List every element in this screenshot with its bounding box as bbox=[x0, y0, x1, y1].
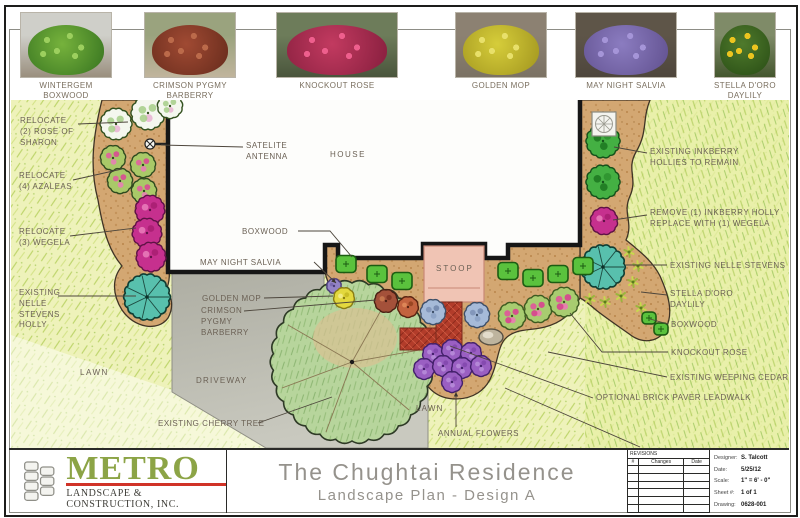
company-name: METRO bbox=[66, 453, 226, 485]
info-row: Sheet #: 1 of 1 bbox=[714, 490, 785, 496]
info-value: 1 of 1 bbox=[741, 490, 757, 496]
legend-item: WINTERGEM BOXWOOD bbox=[20, 12, 112, 100]
info-row: Date: 5/25/12 bbox=[714, 467, 785, 473]
plant-photo-bush bbox=[28, 25, 104, 75]
plant-symbol-boxwood bbox=[367, 266, 387, 283]
plant-symbol-barberry bbox=[374, 290, 397, 313]
callout-annual-flowers: ANNUAL FLOWERS bbox=[438, 429, 519, 440]
legend-item: MAY NIGHT SALVIA bbox=[575, 12, 677, 91]
legend-item: KNOCKOUT ROSE bbox=[276, 12, 398, 91]
revision-row bbox=[628, 482, 709, 490]
plant-symbol-azalea bbox=[107, 169, 132, 194]
plant-photo bbox=[575, 12, 677, 78]
plant-symbol-weigela bbox=[590, 207, 617, 234]
plant-photo-legend: WINTERGEM BOXWOOD CRIMSON PYGMY BARBERRY… bbox=[0, 12, 800, 100]
plant-symbol-annual bbox=[414, 359, 435, 380]
plant-symbol-annual bbox=[442, 372, 463, 393]
company-tagline: LANDSCAPE & CONSTRUCTION, INC. bbox=[66, 488, 226, 510]
callout-relocate-rose-of-sharon: RELOCATE (2) ROSE OF SHARON bbox=[20, 116, 74, 148]
house-footprint bbox=[168, 100, 580, 272]
plant-symbol-knockout_rose bbox=[524, 295, 551, 322]
plant-photo-bush bbox=[720, 25, 770, 75]
revision-row bbox=[628, 474, 709, 482]
plant-symbol-knockout_rose bbox=[498, 302, 525, 329]
plant-photo bbox=[20, 12, 112, 78]
plant-photo-bush bbox=[463, 25, 539, 75]
revisions-header: REVISIONS bbox=[628, 450, 709, 459]
plant-symbol-boxwood bbox=[336, 256, 356, 273]
callout-stella-doro-daylily: STELLA D'ORO DAYLILY bbox=[670, 289, 733, 311]
revisions-columns: #ChangesDate bbox=[628, 459, 709, 466]
info-value: 1" = 6' - 0" bbox=[741, 478, 770, 484]
callout-relocate-azaleas: RELOCATE (4) AZALEAS bbox=[19, 171, 72, 193]
plant-photo-bush bbox=[584, 25, 668, 75]
revision-row bbox=[628, 466, 709, 474]
legend-label: GOLDEN MOP bbox=[455, 81, 547, 91]
callout-crimson-pygmy-barberry: CRIMSON PYGMY BARBERRY bbox=[201, 306, 249, 338]
plant-symbol-boxwood bbox=[548, 266, 568, 283]
tree-trunk-center bbox=[350, 360, 354, 364]
callout-remove-inkberry: REMOVE (1) INKBERRY HOLLY REPLACE WITH (… bbox=[650, 208, 780, 230]
revision-row bbox=[628, 497, 709, 505]
plant-symbol-boxwood bbox=[498, 263, 518, 280]
plant-photo bbox=[276, 12, 398, 78]
callout-house: HOUSE bbox=[330, 150, 366, 161]
plant-photo bbox=[144, 12, 236, 78]
info-value: S. Talcott bbox=[741, 455, 768, 461]
revision-row bbox=[628, 505, 709, 513]
callout-existing-cherry-tree: EXISTING CHERRY TREE bbox=[158, 419, 264, 430]
plant-symbol-boxwood bbox=[642, 312, 656, 324]
callout-knockout-rose: KNOCKOUT ROSE bbox=[671, 348, 748, 359]
drawing-title-cell: The Chughtai Residence Landscape Plan - … bbox=[227, 450, 628, 513]
callout-optional-brick-paver-leadwalk: OPTIONAL BRICK PAVER LEADWALK bbox=[596, 393, 751, 404]
plant-symbol-barberry_orange bbox=[398, 297, 419, 318]
plant-symbol-boxwood bbox=[573, 258, 593, 275]
legend-label: WINTERGEM BOXWOOD bbox=[20, 81, 112, 100]
info-value: 5/25/12 bbox=[741, 467, 761, 473]
plant-symbol-inkberry_holly bbox=[586, 165, 620, 199]
info-row: Designer: S. Talcott bbox=[714, 455, 785, 461]
callout-relocate-wegela: RELOCATE (3) WEGELA bbox=[19, 227, 70, 249]
revision-row bbox=[628, 489, 709, 497]
callout-boxwood-left: BOXWOOD bbox=[242, 227, 288, 238]
callout-existing-nelle-stevens-holly: EXISTING NELLE STEVENS HOLLY bbox=[19, 288, 60, 331]
plant-symbol-salvia bbox=[420, 300, 445, 325]
plant-symbol-boxwood bbox=[523, 270, 543, 287]
ac-unit-icon bbox=[592, 112, 616, 136]
callout-stoop: STOOP bbox=[436, 264, 474, 275]
callout-lawn-left: LAWN bbox=[80, 368, 109, 379]
callout-existing-weeping-cedar: EXISTING WEEPING CEDAR bbox=[670, 373, 789, 384]
plant-symbol-weigela bbox=[136, 242, 166, 272]
plant-symbol-annual bbox=[471, 356, 492, 377]
info-row: Drawing: 0628-001 bbox=[714, 502, 785, 508]
drawing-info-table: Designer: S. Talcott Date: 5/25/12 Scale… bbox=[710, 450, 789, 513]
legend-label: KNOCKOUT ROSE bbox=[276, 81, 398, 91]
info-value: 0628-001 bbox=[741, 502, 766, 508]
legend-label: STELLA D'ORO DAYLILY bbox=[714, 81, 776, 100]
plant-symbol-azalea bbox=[100, 146, 125, 171]
info-row: Scale: 1" = 6' - 0" bbox=[714, 478, 785, 484]
legend-item: GOLDEN MOP bbox=[455, 12, 547, 91]
plant-symbol-golden_mop bbox=[334, 288, 355, 309]
drawing-subtitle: Landscape Plan - Design A bbox=[318, 487, 536, 504]
callout-existing-nelle-stevens-right: EXISTING NELLE STEVENS bbox=[670, 261, 785, 272]
plant-photo bbox=[455, 12, 547, 78]
legend-item: STELLA D'ORO DAYLILY bbox=[714, 12, 776, 100]
revisions-table: REVISIONS #ChangesDate bbox=[628, 450, 710, 513]
plant-symbol-boulder bbox=[479, 329, 503, 345]
callout-boxwood-right: BOXWOOD bbox=[671, 320, 717, 331]
callout-may-night-salvia: MAY NIGHT SALVIA bbox=[200, 258, 281, 269]
plant-symbol-boxwood bbox=[392, 273, 412, 290]
plant-symbol-azalea bbox=[130, 153, 155, 178]
info-label: Designer: bbox=[714, 455, 741, 461]
plant-symbol-rose_of_sharon bbox=[100, 108, 132, 140]
info-label: Drawing: bbox=[714, 502, 741, 508]
plant-symbol-salvia bbox=[464, 303, 489, 328]
callout-satelite-antenna: SATELITE ANTENNA bbox=[246, 141, 288, 163]
info-label: Date: bbox=[714, 467, 741, 473]
title-block: METRO LANDSCAPE & CONSTRUCTION, INC. The… bbox=[9, 448, 789, 513]
legend-label: MAY NIGHT SALVIA bbox=[575, 81, 677, 91]
company-logo-cell: METRO LANDSCAPE & CONSTRUCTION, INC. bbox=[9, 450, 227, 513]
plant-photo-bush bbox=[152, 25, 228, 75]
legend-label: CRIMSON PYGMY BARBERRY bbox=[144, 81, 236, 100]
plant-symbol-holly_nelle_stevens bbox=[124, 274, 171, 320]
callout-existing-inkberry: EXISTING INKBERRY HOLLIES TO REMAIN bbox=[650, 147, 739, 169]
callout-driveway: DRIVEWAY bbox=[196, 376, 247, 387]
plant-photo bbox=[714, 12, 776, 78]
callout-lawn-bottom: LAWN bbox=[416, 404, 444, 415]
info-label: Sheet #: bbox=[714, 490, 741, 496]
legend-item: CRIMSON PYGMY BARBERRY bbox=[144, 12, 236, 100]
info-label: Scale: bbox=[714, 478, 741, 484]
callout-golden-mop: GOLDEN MOP bbox=[202, 294, 261, 305]
plant-symbol-knockout_rose bbox=[549, 287, 579, 317]
project-title: The Chughtai Residence bbox=[278, 459, 575, 486]
metro-paver-logo-icon bbox=[23, 456, 56, 508]
plant-photo-bush bbox=[287, 25, 388, 75]
plant-symbol-boxwood bbox=[654, 323, 668, 335]
